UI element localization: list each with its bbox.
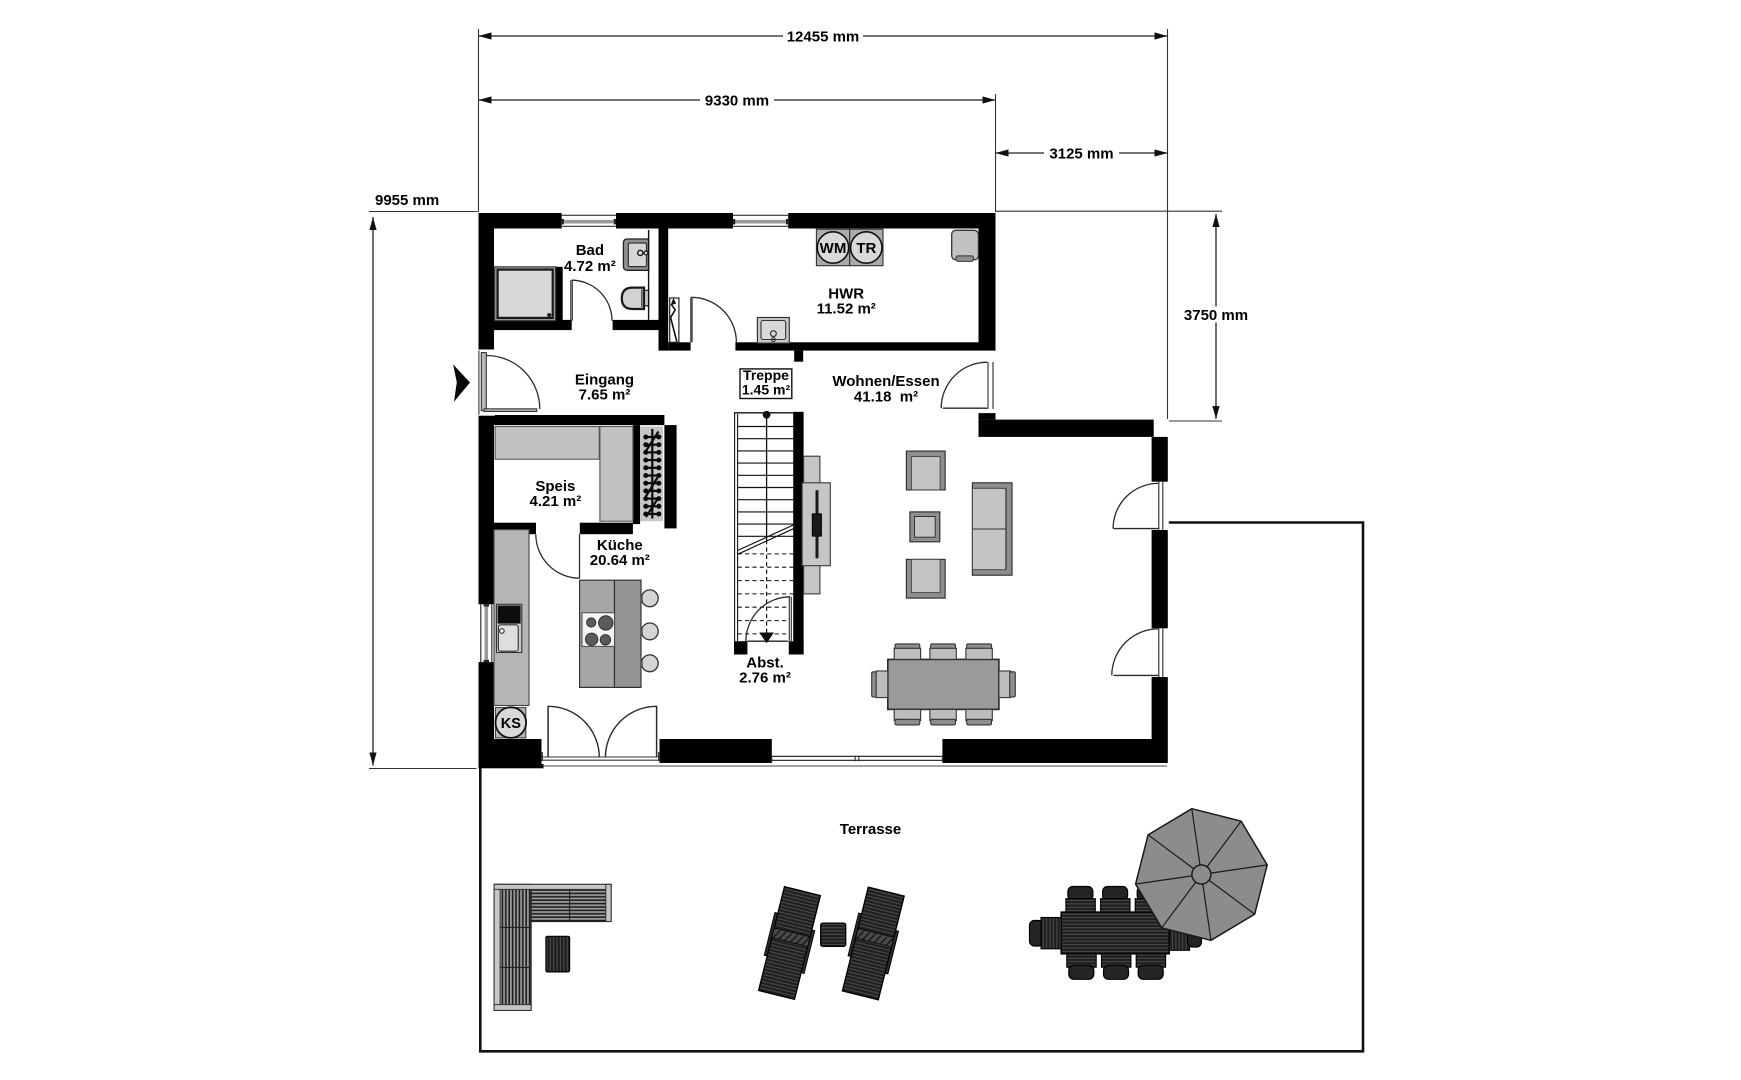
svg-text:9330 mm: 9330 mm (705, 93, 769, 110)
svg-text:3125 mm: 3125 mm (1049, 146, 1113, 163)
svg-text:4.21 m²: 4.21 m² (530, 493, 582, 510)
svg-text:TR: TR (856, 240, 876, 257)
svg-text:KS: KS (501, 716, 521, 732)
svg-text:20.64 m²: 20.64 m² (590, 552, 650, 569)
svg-text:1.45 m²: 1.45 m² (742, 382, 791, 398)
svg-text:7.65 m²: 7.65 m² (579, 387, 631, 404)
svg-text:Bad: Bad (576, 242, 604, 259)
svg-text:11.52 m²: 11.52 m² (817, 301, 876, 318)
svg-text:41.18 m²: 41.18 m² (854, 388, 918, 405)
svg-text:9955 mm: 9955 mm (375, 192, 439, 209)
svg-text:Terrasse: Terrasse (840, 821, 901, 838)
svg-text:WM: WM (820, 240, 847, 257)
svg-text:3750 mm: 3750 mm (1184, 307, 1248, 324)
svg-text:4.72 m²: 4.72 m² (564, 258, 616, 275)
svg-text:2.76 m²: 2.76 m² (739, 670, 791, 687)
svg-text:12455 mm: 12455 mm (787, 29, 860, 46)
